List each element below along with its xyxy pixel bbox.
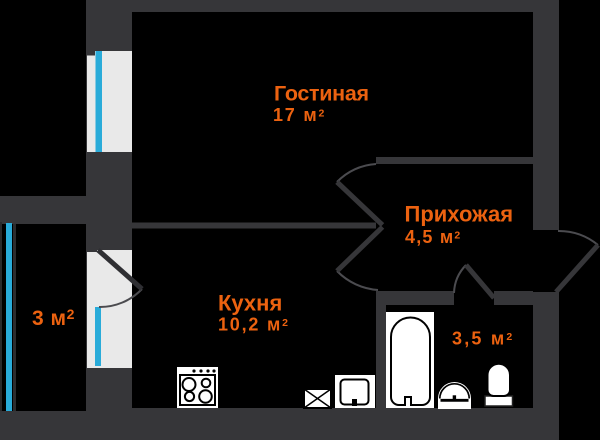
svg-text:10,2 м2: 10,2 м2 xyxy=(218,315,290,335)
svg-text:4,5 м2: 4,5 м2 xyxy=(405,227,461,247)
svg-text:Кухня: Кухня xyxy=(218,291,282,316)
svg-text:Прихожая: Прихожая xyxy=(405,202,514,227)
svg-text:Гостиная: Гостиная xyxy=(274,82,369,106)
svg-text:3,5 м2: 3,5 м2 xyxy=(452,328,514,348)
svg-text:17 м2: 17 м2 xyxy=(273,105,326,125)
